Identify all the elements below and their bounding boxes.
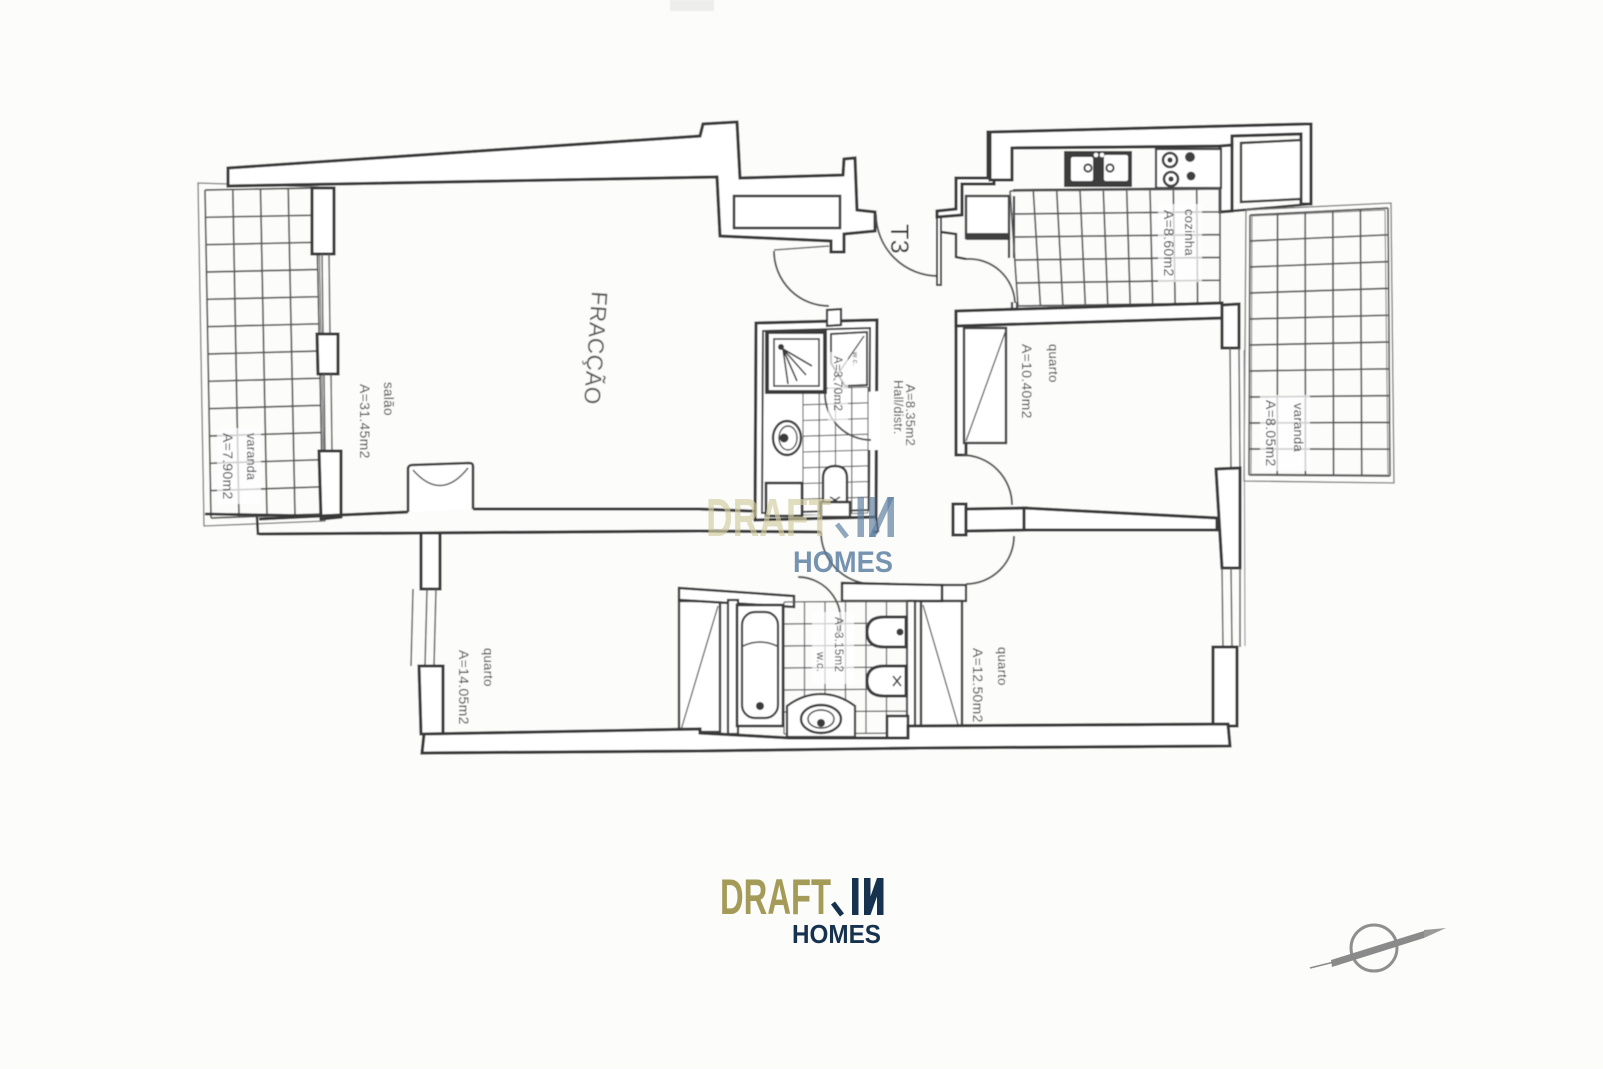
- svg-text:quarto: quarto: [995, 647, 1010, 686]
- svg-text:cozinha: cozinha: [1182, 209, 1197, 256]
- svg-text:A=8.60m2: A=8.60m2: [1161, 210, 1177, 277]
- svg-text:DRAFT: DRAFT: [720, 869, 831, 925]
- svg-text:quarto: quarto: [481, 648, 496, 687]
- svg-text:A=3.15m2: A=3.15m2: [832, 617, 844, 672]
- svg-text:DRAFT: DRAFT: [706, 488, 831, 548]
- svg-text:HOMES: HOMES: [792, 919, 881, 949]
- svg-text:w.c.: w.c.: [814, 651, 826, 672]
- svg-text:A=3.70m2: A=3.70m2: [831, 356, 843, 411]
- svg-text:varanda: varanda: [1291, 403, 1306, 453]
- svg-text:Hall/distr.: Hall/distr.: [891, 380, 905, 435]
- svg-text:A=14.05m2: A=14.05m2: [456, 650, 472, 725]
- svg-text:A=12.50m2: A=12.50m2: [970, 648, 986, 723]
- svg-text:A=10.40m2: A=10.40m2: [1019, 344, 1035, 419]
- svg-text:T3: T3: [885, 224, 913, 254]
- svg-text:A=7.90m2: A=7.90m2: [220, 433, 236, 500]
- svg-text:w.c.: w.c.: [851, 351, 860, 366]
- svg-text:A=8.35m2: A=8.35m2: [903, 384, 918, 446]
- svg-text:quarto: quarto: [1046, 344, 1061, 383]
- svg-text:A=31.45m2: A=31.45m2: [357, 384, 373, 459]
- svg-text:salão: salão: [381, 382, 396, 416]
- svg-text:varanda: varanda: [244, 433, 258, 480]
- svg-text:A=8.05m2: A=8.05m2: [1263, 400, 1279, 467]
- svg-text:HOMES: HOMES: [793, 546, 893, 579]
